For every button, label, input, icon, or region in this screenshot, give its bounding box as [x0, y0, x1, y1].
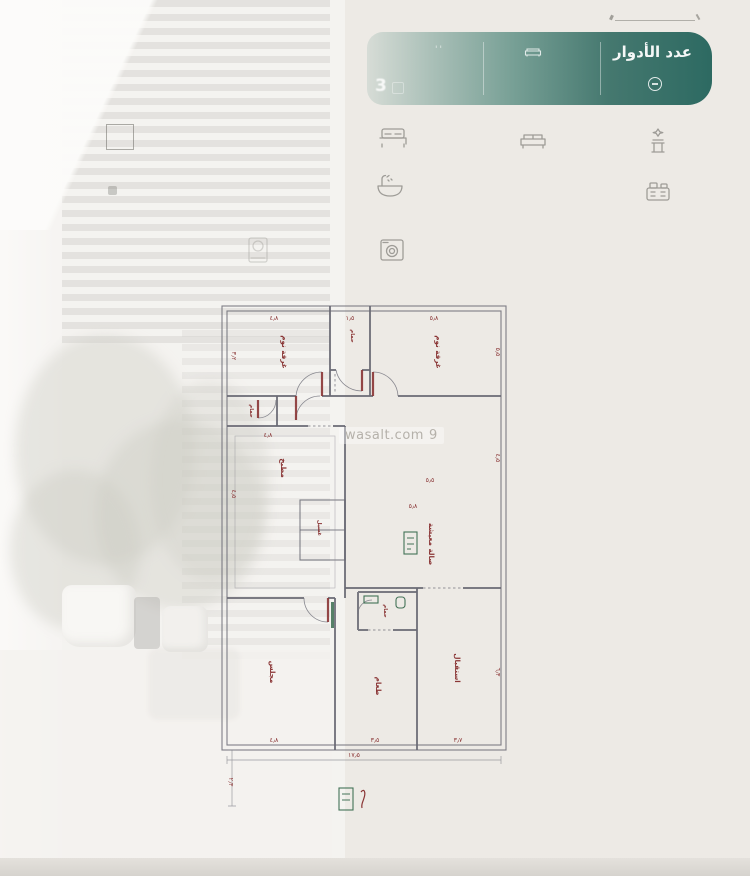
room-label-reception: استقبال	[453, 653, 462, 683]
dim-bottom1: ٤٫٨	[270, 737, 279, 744]
dim-left2: ٤٫٥	[230, 490, 237, 499]
banner-quote-marks: ''	[435, 45, 444, 55]
dim-right2: ٤٫٥	[494, 454, 501, 463]
floor-plan-listing-image: { "banner": { "title": "عدد الأدوار", "r…	[0, 0, 750, 876]
rooms-count-icon	[392, 82, 404, 94]
floor-plan-drawing: غرفة نوم حمام غرفة نوم حمام مطبخ صالة مع…	[208, 296, 514, 828]
banner-title: عدد الأدوار	[605, 43, 700, 61]
room-label-bedroom2: غرفة نوم	[434, 335, 443, 369]
room-label-bath-left: حمام	[248, 404, 254, 418]
green-door-leaf	[331, 602, 334, 628]
property-info-banner: عدد الأدوار '' 3	[367, 32, 712, 105]
dim-right1: ٥٫٥	[494, 348, 501, 357]
dim-top3: ٥٫٨	[430, 315, 439, 322]
banner-divider	[600, 42, 601, 95]
washer-icon	[377, 237, 407, 267]
signature-line	[615, 20, 695, 21]
room-label-dining: طعام	[374, 677, 383, 696]
room-label-hall: صالة معيشة	[427, 523, 436, 565]
room-label-bath-top: حمام	[349, 329, 355, 343]
photo-wall-mark	[108, 186, 117, 195]
dim-bottom3: ٣٫٧	[454, 737, 463, 744]
wasalt-logo-glyph: 9	[429, 428, 438, 443]
hall-stamp-icon	[404, 532, 417, 554]
bath-sink	[364, 596, 378, 603]
watermark: wasalt.com9	[339, 427, 444, 444]
stamp-signature-mark	[361, 790, 365, 808]
sofa-small-icon	[524, 43, 542, 62]
plan-dimensions: ٤٫٨ ١٫٥ ٥٫٨ ٤٫٨ ٥٫٨ ٥٫٥ ٤٫٨ ٣٫٥ ٣٫٧ ١٧٫٥…	[227, 315, 501, 787]
bed-icon	[377, 125, 409, 155]
dim-left1: ٣٫٢	[230, 352, 237, 361]
dim-kitchen-width: ٤٫٨	[264, 432, 273, 439]
plan-interior-walls	[227, 306, 501, 750]
rooms-count-value: 3	[375, 76, 387, 96]
dim-total-width: ١٧٫٥	[348, 752, 360, 759]
dim-hall-height: ٥٫٥	[426, 477, 435, 484]
plan-room-labels: غرفة نوم حمام غرفة نوم حمام مطبخ صالة مع…	[248, 329, 462, 695]
appliance-faint-icon	[245, 234, 271, 270]
signature-mark	[609, 15, 614, 21]
dim-left-ext: ٢٫٣	[227, 778, 234, 787]
chair-icon	[646, 127, 670, 159]
dim-top1: ٤٫٨	[270, 315, 279, 322]
signature-tick	[696, 14, 701, 20]
plan-outer-walls	[222, 306, 506, 750]
dim-bottom2: ٣٫٥	[371, 737, 380, 744]
room-label-majlis: مجلس	[268, 661, 277, 684]
bath-icon	[374, 172, 406, 204]
info-circle-icon	[648, 77, 662, 91]
dim-top2: ١٫٥	[346, 315, 355, 322]
photo-picture-frame	[106, 124, 134, 150]
dim-hall-width: ٥٫٨	[409, 503, 418, 510]
banner-divider	[483, 42, 484, 95]
watermark-text: wasalt.com	[345, 428, 424, 443]
photo-bottom-edge	[0, 858, 750, 876]
room-label-bedroom1: غرفة نوم	[280, 335, 289, 369]
kitchen-icon	[642, 178, 674, 208]
bottom-stamp-icon	[339, 788, 353, 810]
room-label-kitchen: مطبخ	[279, 458, 288, 478]
bath-wc	[396, 597, 405, 608]
room-label-bath-mid: حمام	[382, 604, 388, 618]
sofa-icon	[518, 131, 548, 155]
plan-green-elements	[331, 532, 417, 810]
dim-right3: ٦٫٣	[494, 668, 501, 677]
plan-doors	[258, 370, 398, 622]
room-label-laundry: غسيل	[316, 520, 322, 536]
